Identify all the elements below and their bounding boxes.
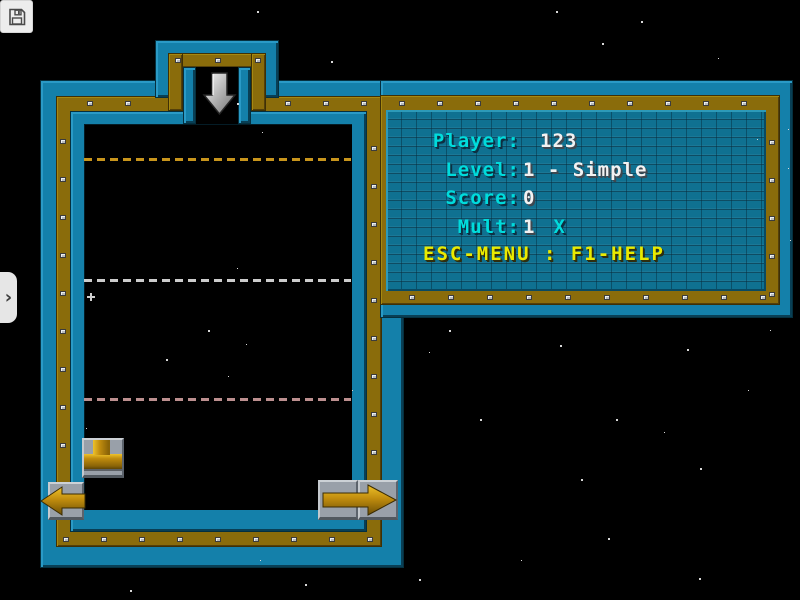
- star: [228, 376, 229, 377]
- star: [790, 240, 791, 241]
- rivet: [215, 537, 221, 542]
- chevron-right-icon: ›: [5, 287, 12, 308]
- rivet: [769, 178, 775, 183]
- rivet: [399, 101, 405, 106]
- exit-arrow-left-icon: [40, 485, 86, 517]
- guide-line-1: [84, 158, 351, 161]
- rivet: [371, 184, 377, 189]
- star: [757, 139, 758, 140]
- rivet: [769, 254, 775, 259]
- star: [699, 578, 701, 580]
- exit-arrow-right-icon: [322, 483, 398, 517]
- star: [262, 132, 263, 133]
- rivet: [255, 58, 261, 63]
- rivet: [721, 295, 727, 300]
- rivet: [291, 537, 297, 542]
- star: [166, 359, 168, 361]
- star: [560, 345, 562, 347]
- rivet: [371, 260, 377, 265]
- rivet: [589, 101, 595, 106]
- rivet: [253, 537, 259, 542]
- rivet: [60, 443, 66, 448]
- rivet: [125, 101, 131, 106]
- hud-row-mult: Mult:1X: [394, 216, 566, 238]
- drop-arrow-icon: [201, 72, 238, 116]
- hud-row-score: Score:0: [394, 187, 535, 209]
- rivet: [371, 374, 377, 379]
- star: [788, 129, 789, 130]
- rivet: [371, 336, 377, 341]
- rivet: [371, 146, 377, 151]
- rivet: [526, 295, 532, 300]
- notch-inner-teal-left: [183, 67, 196, 124]
- star: [429, 352, 430, 353]
- rivet: [437, 101, 443, 106]
- rivet: [285, 101, 291, 106]
- hud-value: 0: [523, 187, 535, 209]
- rivet: [361, 101, 367, 106]
- star: [419, 579, 421, 581]
- hud-value: 1 - Simple: [523, 159, 647, 181]
- rivet: [551, 101, 557, 106]
- star: [260, 560, 261, 561]
- star: [521, 560, 522, 561]
- rivet: [60, 139, 66, 144]
- pipe-horizontal-bar: [84, 454, 122, 469]
- rivet: [371, 222, 377, 227]
- rivet: [513, 101, 519, 106]
- star: [305, 584, 307, 586]
- rivet: [60, 253, 66, 258]
- guide-line-2: [84, 279, 351, 282]
- star: [687, 349, 689, 351]
- rivet: [60, 367, 66, 372]
- star: [616, 419, 618, 421]
- rivet: [60, 177, 66, 182]
- rivet: [760, 295, 766, 300]
- pipe-up-stub: [93, 440, 110, 455]
- star: [449, 330, 451, 332]
- rivet: [215, 58, 221, 63]
- game-screen[interactable]: Player:123Level:1 - SimpleScore:0Mult:1X…: [0, 0, 800, 600]
- star: [237, 268, 238, 269]
- star: [770, 330, 771, 331]
- hud-label: Level:: [394, 159, 520, 181]
- rivet: [60, 291, 66, 296]
- star: [700, 468, 702, 470]
- rivet: [665, 101, 671, 106]
- star: [602, 43, 604, 45]
- rivet: [63, 537, 69, 542]
- star: [664, 432, 665, 433]
- rivet: [101, 537, 107, 542]
- rivet: [741, 101, 747, 106]
- rivet: [409, 295, 415, 300]
- star: [556, 11, 558, 13]
- rivet: [60, 329, 66, 334]
- hud-label: Score:: [394, 187, 520, 209]
- rivet: [487, 295, 493, 300]
- star: [718, 58, 719, 59]
- notch-inner-teal-right: [238, 67, 251, 124]
- rivet: [627, 101, 633, 106]
- well-interior: [84, 124, 352, 510]
- guide-line-3: [84, 398, 351, 401]
- star: [352, 390, 353, 391]
- rivet: [367, 537, 373, 542]
- star: [237, 103, 239, 105]
- save-button[interactable]: [0, 0, 33, 33]
- star: [331, 61, 333, 63]
- rivet: [371, 298, 377, 303]
- help-text: ESC-MENU : F1-HELP: [423, 243, 665, 265]
- rivet: [175, 58, 181, 63]
- rivet: [769, 216, 775, 221]
- hud-row-level: Level:1 - Simple: [394, 159, 647, 181]
- rivet: [475, 101, 481, 106]
- hud-label: Mult:: [394, 216, 520, 238]
- star: [748, 390, 749, 391]
- hud-label: Player:: [394, 130, 520, 152]
- star: [608, 538, 610, 540]
- rivet: [769, 292, 775, 297]
- hud-suffix: X: [553, 216, 565, 238]
- star: [257, 11, 259, 13]
- hud-value: 1: [523, 216, 535, 238]
- rivet: [177, 537, 183, 542]
- rivet: [604, 295, 610, 300]
- rivet: [60, 215, 66, 220]
- star: [86, 428, 87, 429]
- star: [208, 330, 210, 332]
- star: [480, 419, 482, 421]
- star: [130, 590, 132, 592]
- rivet: [323, 101, 329, 106]
- rivet: [139, 537, 145, 542]
- rivet: [703, 101, 709, 106]
- rivet: [60, 405, 66, 410]
- hud-value: 123: [540, 130, 577, 152]
- rivet: [565, 295, 571, 300]
- rivet: [371, 412, 377, 417]
- rivet: [371, 450, 377, 455]
- hud-row-player: Player:123: [394, 130, 577, 152]
- star: [788, 168, 789, 169]
- rivet: [769, 140, 775, 145]
- sidebar-toggle-button[interactable]: ›: [0, 272, 17, 323]
- star: [581, 479, 583, 481]
- pipe-tile-t-junction: [82, 438, 124, 478]
- rivet: [643, 295, 649, 300]
- floppy-disk-icon: [7, 7, 27, 27]
- rivet: [87, 101, 93, 106]
- rivet: [682, 295, 688, 300]
- star: [246, 344, 247, 345]
- sparkle-star: [87, 293, 95, 301]
- rivet: [448, 295, 454, 300]
- star: [641, 21, 643, 23]
- rivet: [329, 537, 335, 542]
